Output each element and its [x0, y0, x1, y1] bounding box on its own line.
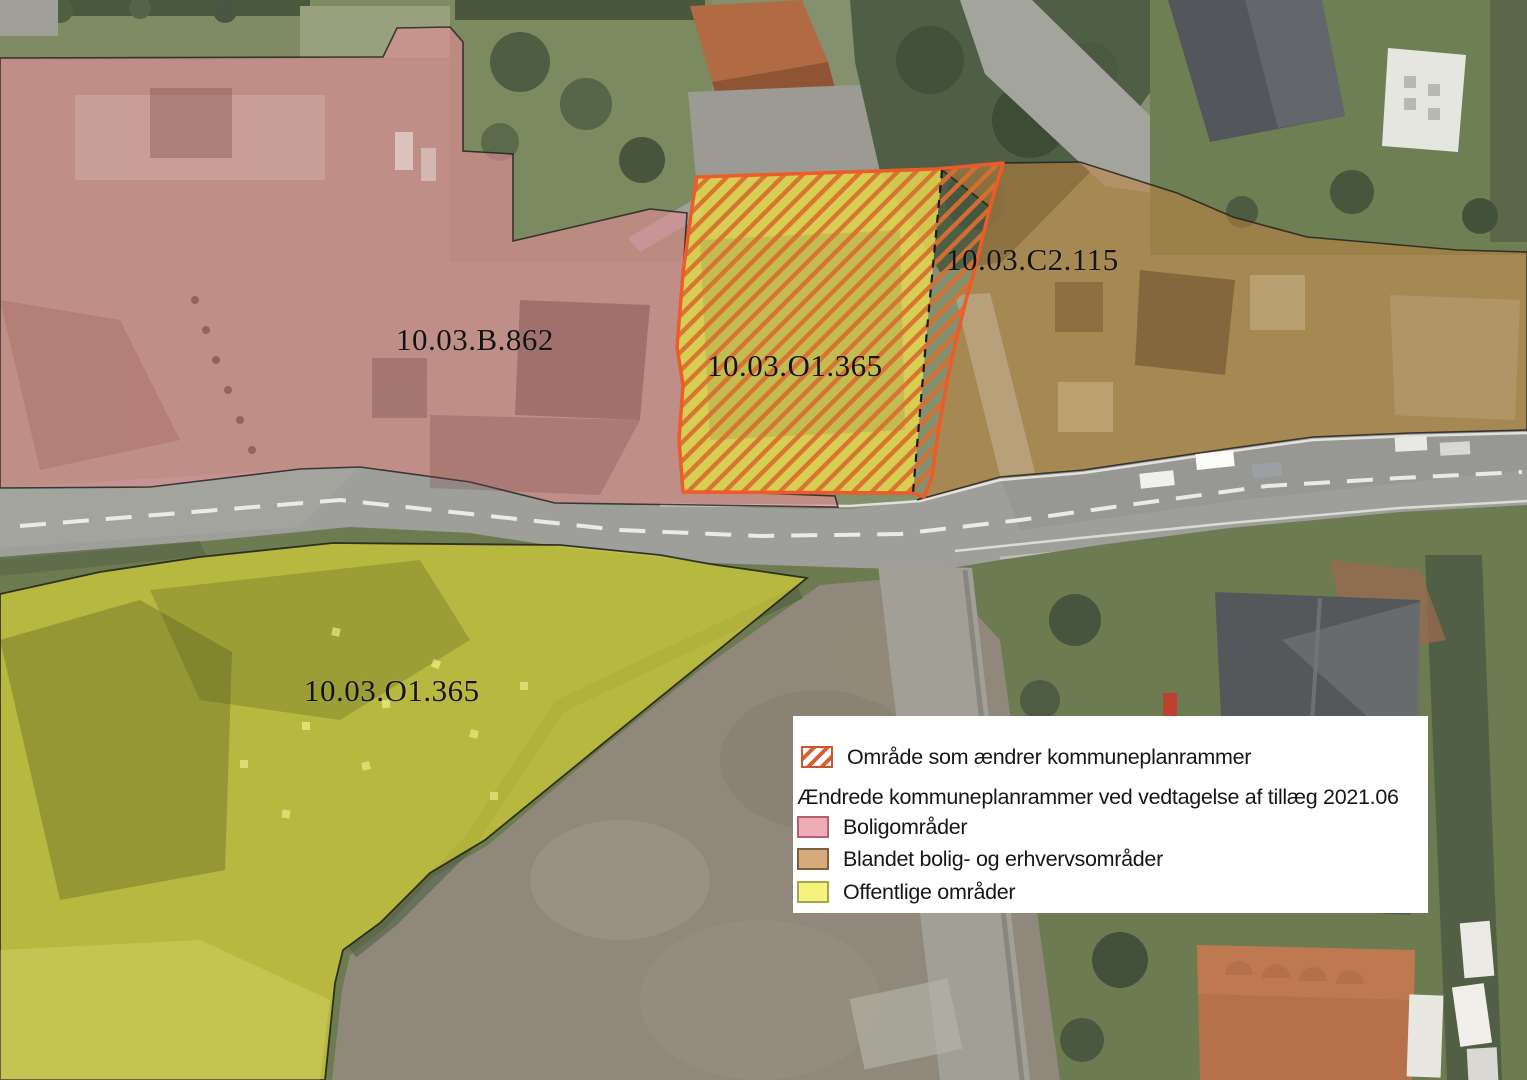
legend: Område som ændrer kommuneplanrammer Ændr… — [793, 716, 1428, 913]
municipal-plan-map: 10.03.B.862 10.03.O1.365 10.03.C2.115 10… — [0, 0, 1527, 1080]
label-zone-mixed: 10.03.C2.115 — [946, 242, 1119, 278]
legend-item-label: Boligområder — [843, 815, 967, 839]
legend-item-changed-area: Område som ændrer kommuneplanrammer — [797, 744, 1251, 770]
legend-item-mixed: Blandet bolig- og erhvervsområder — [797, 848, 1163, 870]
public-swatch-icon — [797, 881, 829, 903]
mixed-swatch-icon — [797, 848, 829, 870]
label-zone-changed: 10.03.O1.365 — [707, 348, 883, 384]
label-zone-residential: 10.03.B.862 — [396, 322, 554, 358]
hatch-swatch-icon — [801, 746, 833, 768]
legend-item-residential: Boligområder — [797, 816, 967, 838]
legend-item-label: Offentlige områder — [843, 880, 1015, 904]
residential-swatch-icon — [797, 816, 829, 838]
legend-item-public: Offentlige områder — [797, 881, 1015, 903]
legend-subtitle: Ændrede kommuneplanrammer ved vedtagelse… — [797, 785, 1399, 810]
legend-item-label: Blandet bolig- og erhvervsområder — [843, 847, 1163, 871]
label-zone-public: 10.03.O1.365 — [304, 673, 480, 709]
map-canvas — [0, 0, 1527, 1080]
legend-item-label: Område som ændrer kommuneplanrammer — [847, 745, 1251, 769]
